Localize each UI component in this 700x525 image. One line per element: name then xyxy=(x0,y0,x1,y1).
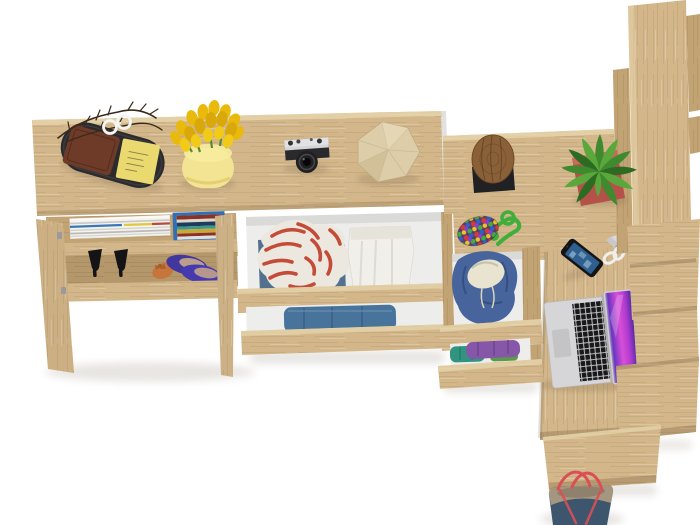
stool-log-top xyxy=(472,135,514,183)
product-photo-stage: 3d-product-render xyxy=(0,0,700,525)
blue-hoodie xyxy=(452,251,517,324)
flower-vase xyxy=(182,144,234,188)
stool xyxy=(472,135,515,193)
sticky-notes xyxy=(115,138,160,185)
shelf-slab-1 xyxy=(627,219,700,320)
hoodie-drawer-unit xyxy=(438,246,544,389)
laptop-trackpad xyxy=(552,328,572,358)
door-hinge xyxy=(57,232,62,239)
white-trousers xyxy=(348,226,414,292)
furniture-top-view-render: 3d-product-render xyxy=(0,0,700,525)
magazine-stack xyxy=(70,215,171,238)
wardrobe-panel-tab2 xyxy=(688,116,700,154)
striped-shirt xyxy=(258,220,352,294)
chest-of-drawers xyxy=(238,212,455,355)
door-hinge xyxy=(61,287,66,294)
